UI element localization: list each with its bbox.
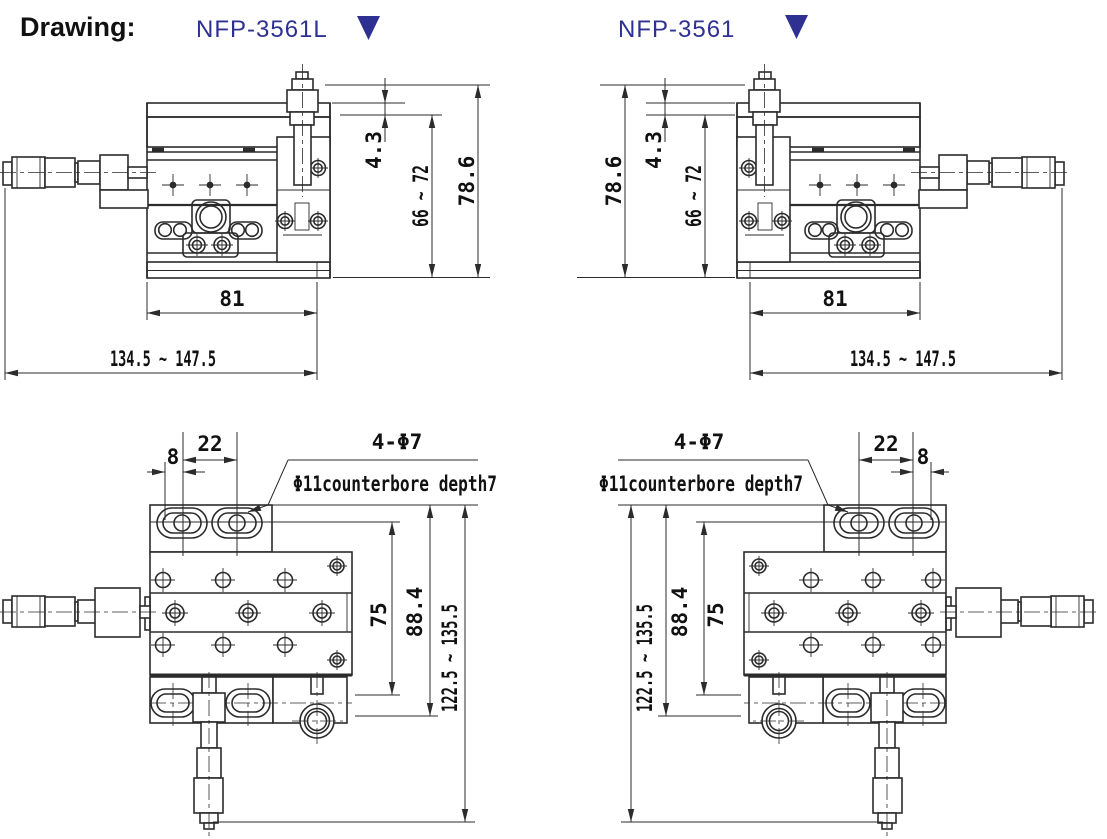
dim-label: 78.6 <box>455 156 479 207</box>
counterbore-note: Φ11counterbore depth7 <box>599 472 803 496</box>
model-label-nfp-3561[interactable]: NFP-3561 <box>618 16 735 43</box>
hole-count-note: 4-Φ7 <box>372 430 423 454</box>
dim-label: 134.5 ~ 147.5 <box>850 347 956 371</box>
dim-label: 75 <box>704 602 728 627</box>
dim-label: 122.5 ~ 135.5 <box>438 604 462 712</box>
drawing-page: Drawing: NFP-3561L NFP-3561 4.3 <box>0 0 1107 839</box>
dropdown-arrow-icon[interactable] <box>357 16 380 40</box>
header: Drawing: NFP-3561L NFP-3561 <box>20 12 808 43</box>
page-title: Drawing: <box>20 12 136 42</box>
dim-label: 4.3 <box>642 131 666 169</box>
dim-label: 75 <box>367 602 391 627</box>
dim-label: 88.4 <box>403 587 427 638</box>
side-view-left-drawing: 4.3 66 ~ 72 78.6 81 134.5 ~ 147.5 <box>0 64 490 380</box>
dropdown-arrow-icon[interactable] <box>785 15 808 39</box>
top-view-right-drawing: 22 8 4-Φ7 Φ11counterbore depth7 75 88.4 <box>599 430 1096 836</box>
model-selector-nfp-3561l[interactable]: NFP-3561L <box>196 16 380 43</box>
dim-label: 8 <box>167 445 180 469</box>
dim-label: 134.5 ~ 147.5 <box>110 347 216 371</box>
dim-label: 78.6 <box>602 156 626 207</box>
dim-label: 66 ~ 72 <box>409 165 433 227</box>
side-view-right-drawing: 4.3 66 ~ 72 78.6 81 134.5 ~ 147.5 <box>577 64 1067 380</box>
top-view-left-drawing: 22 8 4-Φ7 Φ11counterbore depth7 75 88.4 <box>0 430 497 836</box>
dim-label: 4.3 <box>362 131 386 169</box>
side-view-left-dimensions: 4.3 66 ~ 72 78.6 81 134.5 ~ 147.5 <box>5 78 490 380</box>
model-selector-nfp-3561[interactable]: NFP-3561 <box>618 15 808 43</box>
hole-count-note: 4-Φ7 <box>674 430 725 454</box>
dim-label: 81 <box>219 287 244 311</box>
dim-label: 66 ~ 72 <box>682 165 706 227</box>
side-view-right-dimensions: 4.3 66 ~ 72 78.6 81 134.5 ~ 147.5 <box>577 78 1062 380</box>
counterbore-note: Φ11counterbore depth7 <box>293 472 497 496</box>
dim-label: 88.4 <box>668 587 692 638</box>
model-label-nfp-3561l[interactable]: NFP-3561L <box>196 16 328 43</box>
dim-label: 81 <box>822 287 847 311</box>
technical-drawing-canvas: Drawing: NFP-3561L NFP-3561 4.3 <box>0 0 1107 839</box>
dim-label: 22 <box>873 432 898 456</box>
dim-label: 122.5 ~ 135.5 <box>633 604 657 712</box>
dim-label: 22 <box>197 432 222 456</box>
dim-label: 8 <box>917 445 930 469</box>
